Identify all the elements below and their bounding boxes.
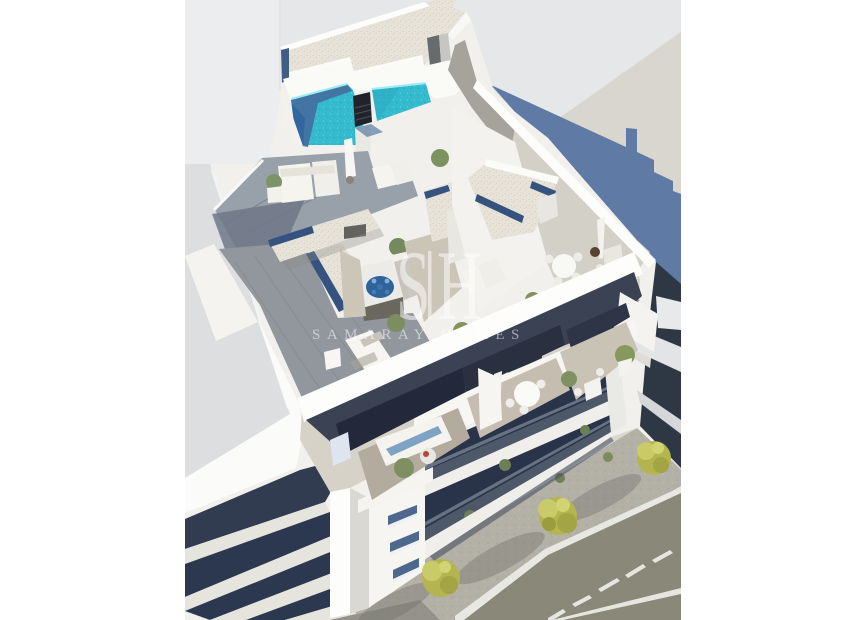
svg-text:H: H	[437, 230, 482, 341]
svg-text:SAMARAY HOMES: SAMARAY HOMES	[312, 327, 526, 343]
svg-text:S: S	[396, 230, 430, 341]
